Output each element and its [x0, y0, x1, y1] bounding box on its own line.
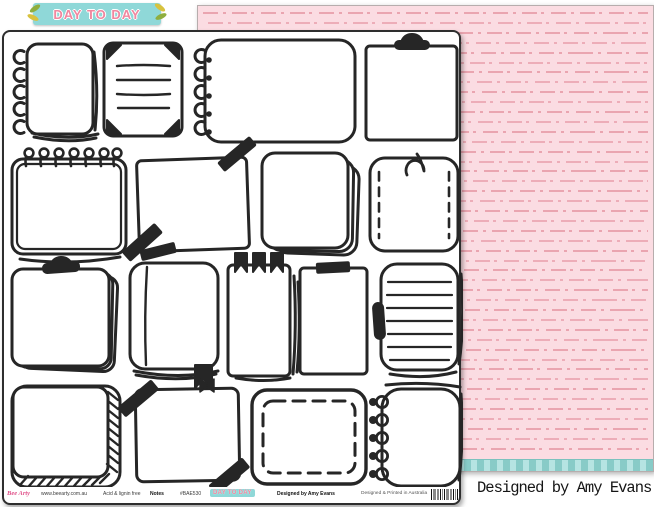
- collection-logo-banner: DAY TO DAY: [33, 3, 161, 25]
- frame-washi-ribbon-note-icon: [117, 379, 250, 487]
- frame-dashed-border-note-icon: [252, 390, 366, 484]
- brand-logo: Bee Arty: [7, 490, 30, 497]
- barcode-icon: [431, 489, 458, 500]
- leaf-icon: [27, 13, 40, 23]
- leaf-icon: [154, 2, 167, 13]
- frame-top-spiral-notepad-icon: [12, 149, 126, 262]
- acid-free-label: Acid & lignin free: [103, 491, 141, 497]
- frame-washi-taped-note-icon: [122, 136, 257, 262]
- leaf-icon: [29, 3, 42, 14]
- frame-ring-notebook-left-icon: [14, 44, 98, 141]
- product-image: Bee Arty www.beearty.com.au Acid & ligni…: [0, 0, 654, 507]
- frame-pennant-flag-note-icon: [228, 253, 299, 381]
- collection-logo-text: DAY TO DAY: [53, 7, 140, 22]
- frame-lined-pad-side-clip-icon: [372, 264, 463, 377]
- frame-journal-bookmark-icon: [130, 263, 218, 388]
- frame-clipboard-icon: [366, 34, 457, 140]
- brand-website: www.beearty.com.au: [41, 491, 87, 497]
- mini-collection-logo: DAY TO DAY: [210, 489, 255, 497]
- doodle-frames: [4, 32, 463, 487]
- frame-rope-edge-note-icon: [12, 386, 120, 487]
- front-sheet-notes-paper: Bee Arty www.beearty.com.au Acid & ligni…: [2, 30, 461, 505]
- origin-label: Designed & Printed in Australia: [361, 491, 427, 496]
- frame-stacked-notes-icon: [262, 153, 360, 255]
- paper-title: Notes: [150, 491, 164, 497]
- leaf-icon: [155, 12, 168, 22]
- designer-credit: Designed by Amy Evans: [477, 479, 654, 497]
- frame-photo-corner-note-icon: [104, 43, 182, 136]
- frame-stitched-note-hook-icon: [370, 154, 458, 251]
- frame-wide-ring-notebook-icon: [195, 40, 355, 142]
- designer-credit-small: Designed by Amy Evans: [277, 491, 335, 497]
- sheet-footer: Bee Arty www.beearty.com.au Acid & ligni…: [4, 486, 459, 502]
- frame-ring-bound-notebook-icon: [369, 383, 462, 486]
- frame-clip-pad-icon: [12, 256, 118, 372]
- frame-taped-tall-note-icon: [300, 261, 367, 374]
- sku-code: #BAE530: [180, 491, 201, 497]
